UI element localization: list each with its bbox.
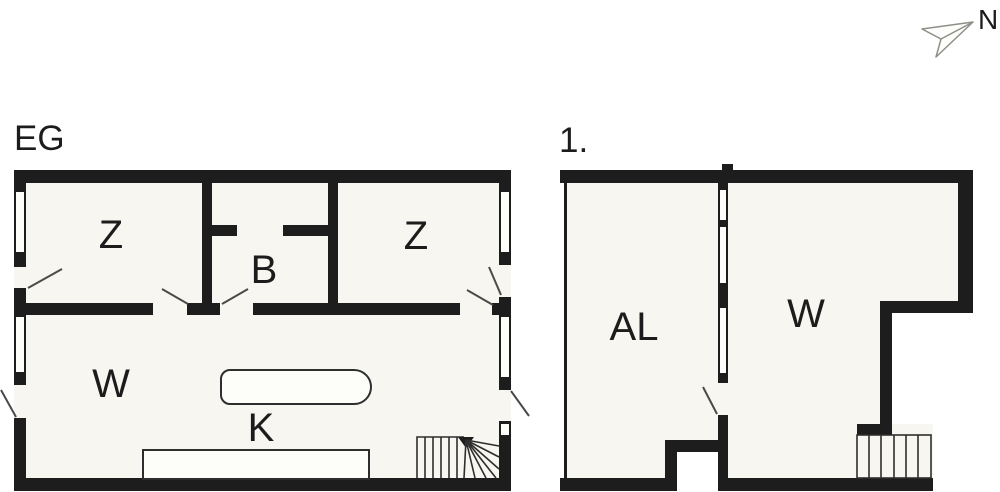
- first-floor-title: 1.: [559, 123, 588, 158]
- ff-wall-bottom-right: [719, 478, 933, 491]
- room-label-z-left: Z: [99, 215, 123, 255]
- eg-wall-right-seg: [499, 377, 511, 390]
- ff-notch-right-lower: [933, 424, 973, 492]
- eg-window-right-1: [499, 192, 511, 252]
- eg-kitchen-counter: [142, 449, 370, 480]
- ff-notch-right-upper: [892, 313, 973, 424]
- eg-wall-mid-seg: [253, 303, 460, 315]
- eg-wall-left-seg: [14, 418, 26, 491]
- ff-wall-right-step-h: [880, 301, 973, 313]
- ff-chimney: [722, 164, 733, 172]
- ff-railing-left: [564, 170, 567, 491]
- ff-divider-seg: [718, 373, 728, 383]
- ff-notch-bottom: [677, 452, 719, 492]
- eg-wall-b-z: [328, 183, 338, 305]
- ff-divider-window-1: [718, 190, 728, 220]
- eg-wall-mid-seg: [26, 303, 153, 315]
- eg-window-left-1: [14, 192, 26, 252]
- eg-table: [220, 369, 372, 405]
- ff-divider-window-3: [718, 308, 728, 373]
- eg-wall-b-stub-right: [283, 225, 328, 236]
- ff-divider-seg: [718, 415, 728, 491]
- ff-floor-fill: [564, 170, 973, 313]
- eg-plan-title: EG: [14, 121, 65, 156]
- eg-wall-left-seg: [14, 372, 26, 385]
- room-label-z-right: Z: [404, 216, 428, 256]
- ff-divider-seg: [718, 183, 728, 190]
- door-swing: [511, 391, 529, 416]
- eg-window-left-2: [14, 317, 26, 372]
- eg-wall-b-stub-left: [212, 225, 237, 236]
- ff-divider-seg: [718, 283, 728, 308]
- north-arrow-icon: [922, 22, 973, 57]
- ff-wall-bottom-left: [560, 478, 677, 491]
- compass-north-label: N: [978, 6, 998, 34]
- eg-wall-right-seg: [499, 252, 511, 265]
- eg-wall-z-b: [202, 183, 212, 305]
- ff-wall-top: [560, 170, 973, 183]
- ff-wall-notch-v: [665, 440, 677, 491]
- eg-window-right-3: [499, 424, 511, 435]
- eg-wall-right-seg: [499, 170, 511, 192]
- ff-wall-right-step-v: [880, 301, 892, 435]
- eg-wall-right-seg: [499, 435, 511, 491]
- eg-wall-mid-pier: [492, 303, 499, 315]
- ff-divider-seg: [718, 220, 728, 227]
- ff-wall-stair-step: [857, 424, 892, 435]
- eg-window-right-2: [499, 317, 511, 377]
- eg-wall-mid-pier: [187, 303, 220, 315]
- eg-wall-left-seg: [14, 170, 26, 192]
- floorplan-canvas: EG 1. Z B Z W K AL W N: [0, 0, 1000, 492]
- ff-wall-right: [958, 170, 973, 313]
- eg-wall-left-seg: [14, 288, 26, 317]
- eg-wall-right-seg: [499, 297, 511, 317]
- room-label-al: AL: [610, 307, 659, 347]
- eg-wall-left-seg: [14, 252, 26, 267]
- room-label-w-ff: W: [787, 294, 825, 334]
- room-label-w-eg: W: [92, 364, 130, 404]
- eg-wall-top: [14, 170, 511, 183]
- room-label-k: K: [248, 408, 275, 448]
- room-label-b: B: [251, 250, 278, 290]
- ff-divider-window-2: [718, 227, 728, 283]
